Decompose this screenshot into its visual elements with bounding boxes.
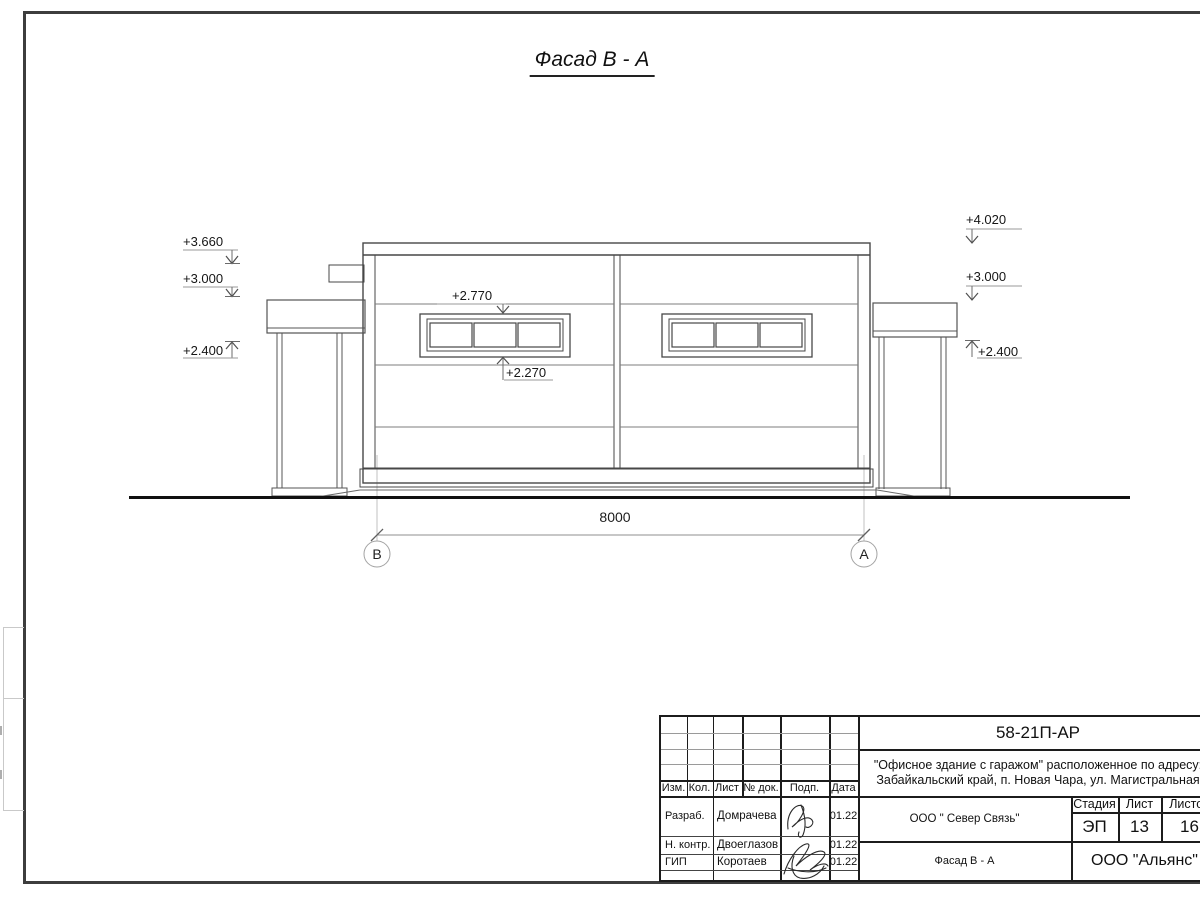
project-address-line1: "Офисное здание с гаражом" расположенное…: [874, 758, 1200, 773]
tb-line: [661, 733, 858, 734]
stage-label: Стадия: [1071, 796, 1118, 812]
elevation-label: +3.660: [183, 234, 223, 249]
staff-date: 01.22: [829, 836, 858, 854]
axis-marker-b: В: [364, 541, 390, 567]
axis-marker-a: А: [851, 541, 877, 567]
staff-name: Коротаев: [717, 854, 780, 870]
elevation-label: +4.020: [966, 212, 1006, 227]
staff-date: 01.22: [829, 796, 858, 836]
canopy-right: [873, 303, 957, 496]
dimension-line: [371, 529, 870, 541]
view-title: Фасад В - А: [858, 841, 1071, 880]
staff-role: ГИП: [665, 854, 712, 870]
elevation-label: +2.400: [183, 343, 223, 358]
drawing-sheet: Фасад В - А: [0, 0, 1200, 900]
staff-name: Домрачева: [717, 796, 780, 836]
doc-number: 58-21П-АР: [858, 717, 1200, 749]
col-list: Лист: [712, 780, 742, 796]
staff-role: Разраб.: [665, 796, 712, 836]
elevation-label: +2.400: [978, 344, 1018, 359]
sheets-total: 16: [1161, 812, 1200, 841]
col-data: Дата: [829, 780, 858, 796]
signature-kontr-gip: [780, 836, 832, 882]
staff-date: 01.22: [829, 854, 858, 870]
staff-role: Н. контр.: [665, 836, 712, 854]
elevation-label: +3.000: [183, 271, 223, 286]
project-address-line2: Забайкальский край, п. Новая Чара, ул. М…: [876, 773, 1199, 788]
signature-domracheva: [782, 799, 826, 839]
title-block: Изм. Кол. Лист № док. Подп. Дата Разраб.…: [659, 715, 1200, 882]
base-apron: [320, 490, 917, 497]
dimension-value: 8000: [577, 509, 653, 525]
col-kol: Кол.: [686, 780, 713, 796]
col-izm: Изм.: [661, 780, 686, 796]
window-left: [420, 314, 570, 357]
organization: ООО "Альянс": [1071, 841, 1200, 880]
canopy-left: [267, 300, 365, 496]
sheet-number: 13: [1118, 812, 1161, 841]
tb-line: [661, 764, 858, 765]
project-address: "Офисное здание с гаражом" расположенное…: [858, 749, 1200, 796]
staff-name: Двоеглазов: [717, 836, 780, 854]
tb-line: [713, 717, 715, 880]
col-doc: № док.: [742, 780, 780, 796]
stage-value: ЭП: [1071, 812, 1118, 841]
col-podp: Подп.: [780, 780, 829, 796]
window-right: [662, 314, 812, 357]
contractor: ООО " Север Связь": [858, 796, 1071, 841]
sheet-label: Лист: [1118, 796, 1161, 812]
axis-circles: [364, 541, 877, 567]
tb-line: [661, 749, 858, 750]
elevation-label: +2.770: [452, 288, 492, 303]
elevation-label: +2.270: [506, 365, 546, 380]
sheets-label: Листов: [1161, 796, 1200, 812]
elevation-label: +3.000: [966, 269, 1006, 284]
